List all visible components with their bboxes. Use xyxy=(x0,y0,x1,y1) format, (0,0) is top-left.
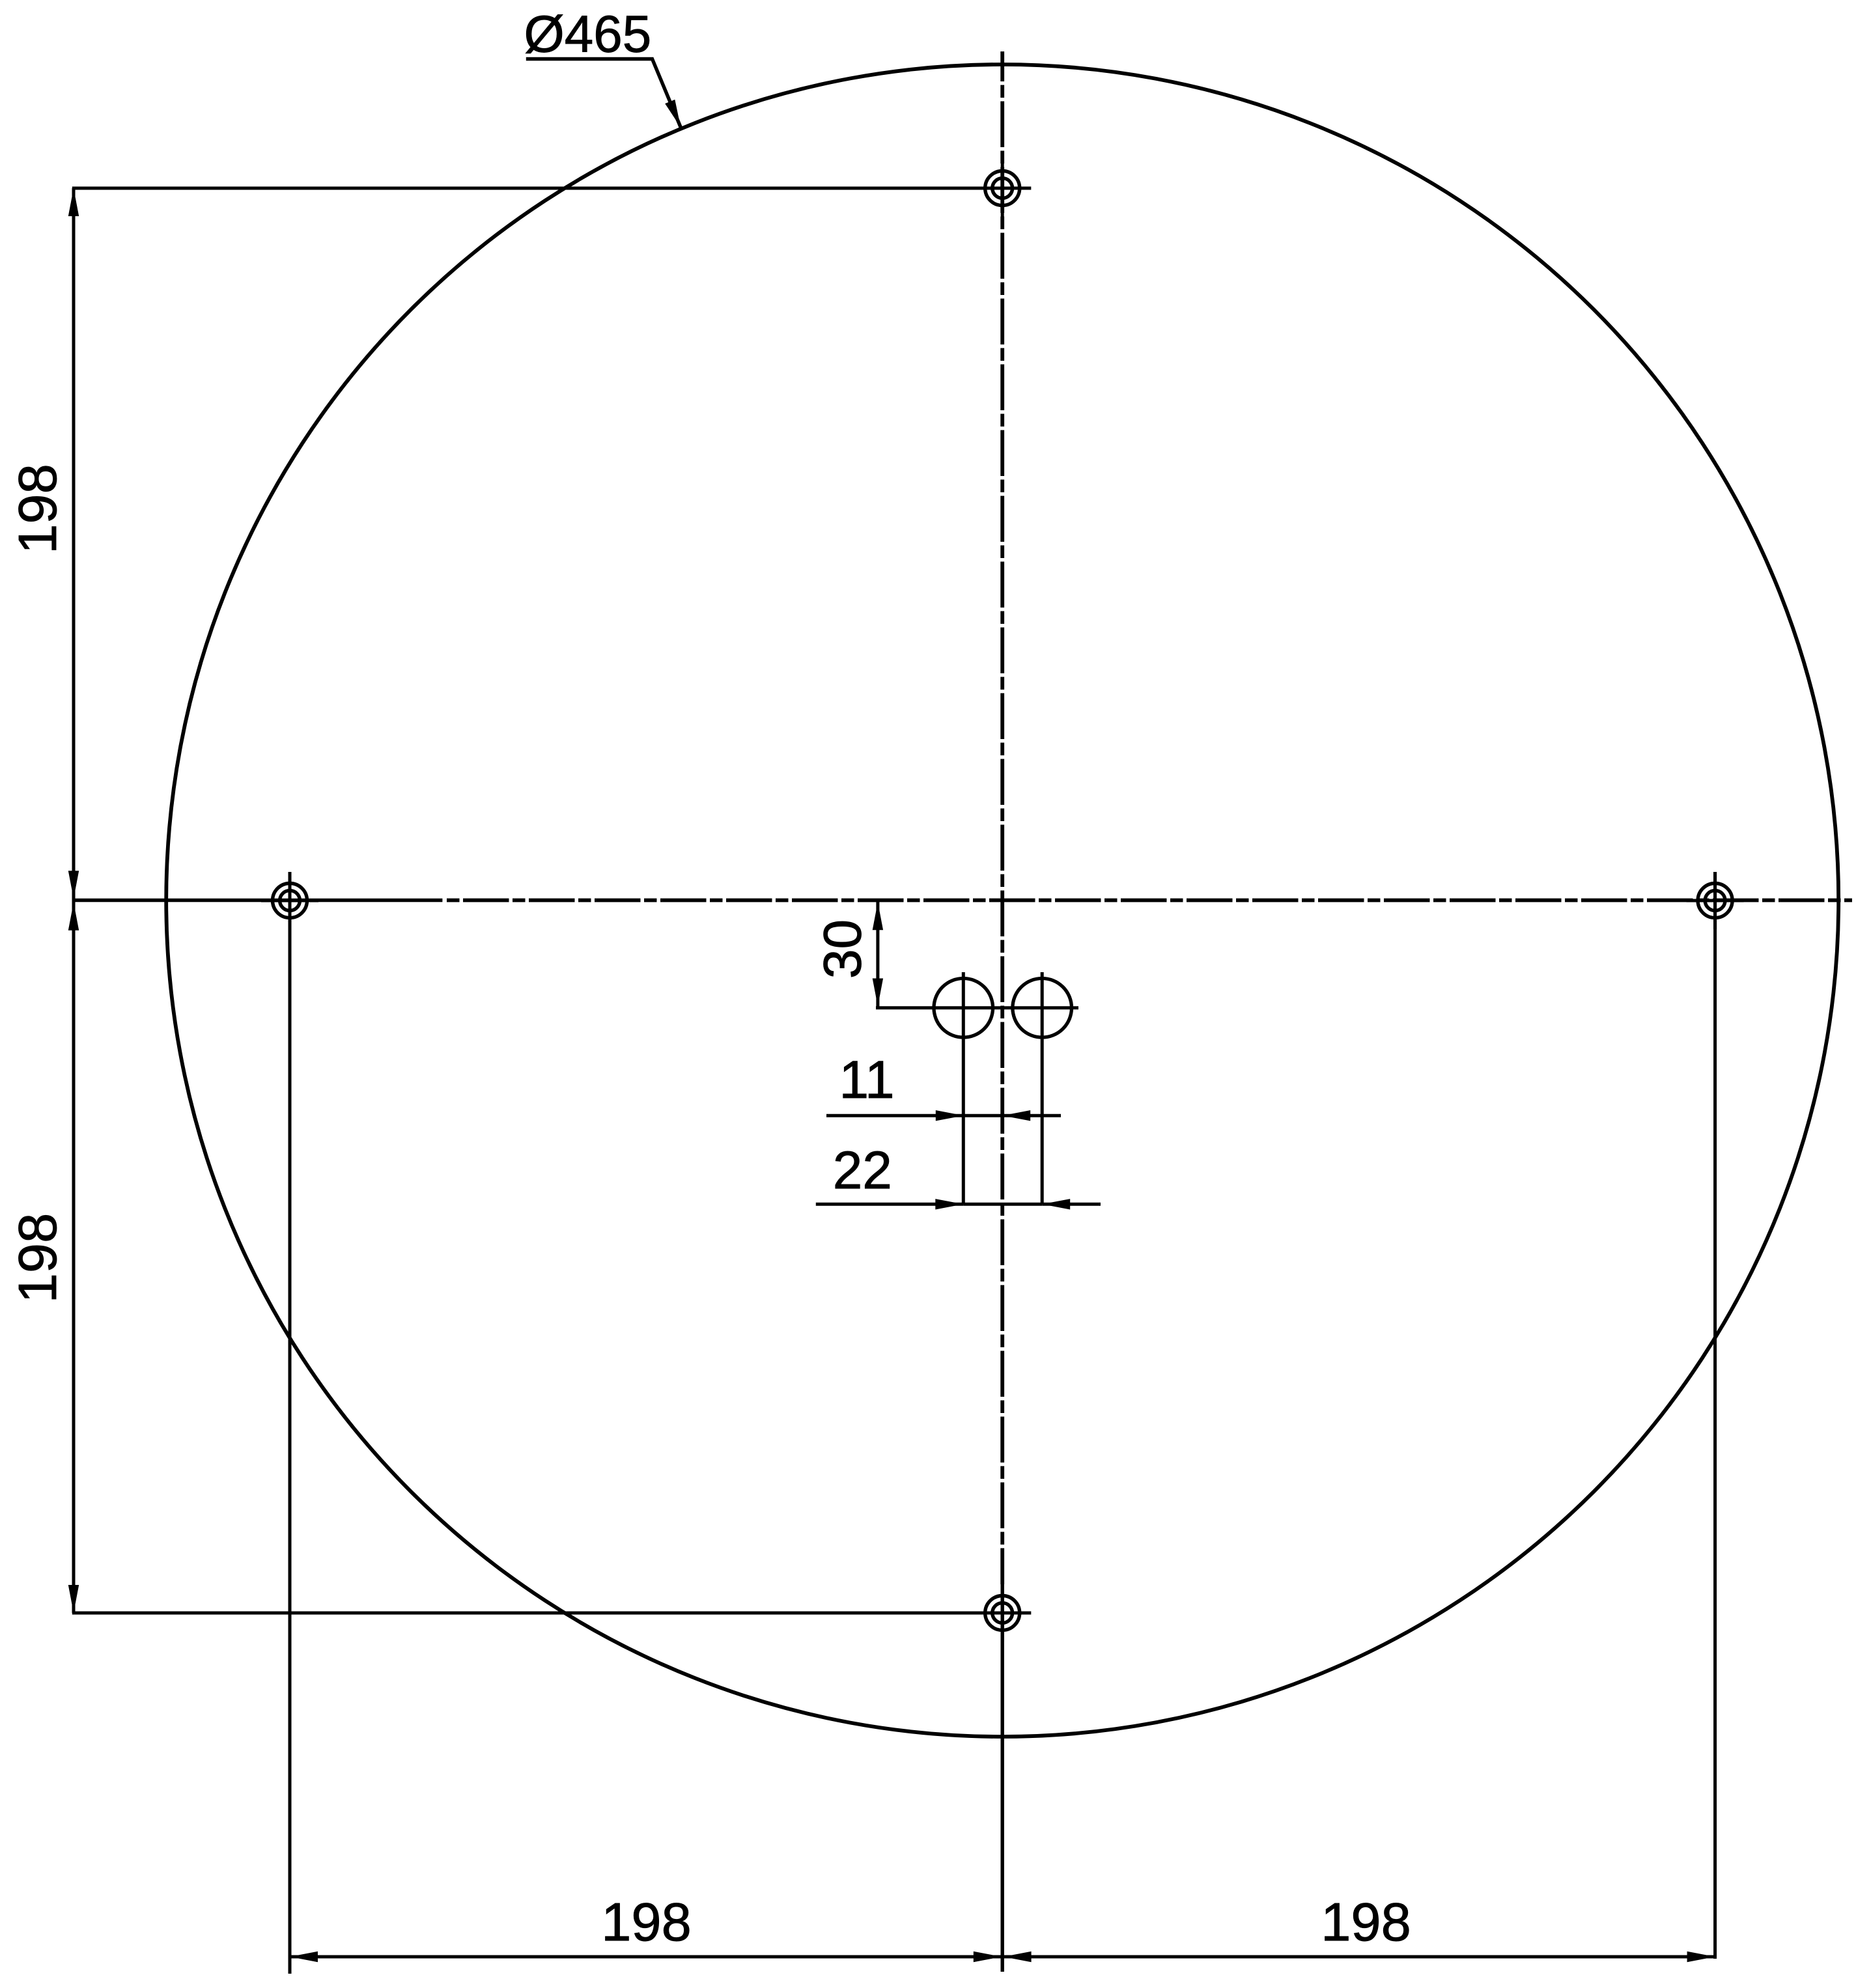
svg-text:198: 198 xyxy=(7,464,68,553)
svg-text:Ø465: Ø465 xyxy=(524,5,652,63)
svg-text:198: 198 xyxy=(601,1892,691,1952)
svg-text:198: 198 xyxy=(7,1213,68,1303)
svg-text:198: 198 xyxy=(1321,1892,1411,1952)
svg-text:11: 11 xyxy=(839,1050,894,1110)
svg-text:22: 22 xyxy=(833,1141,892,1200)
svg-text:30: 30 xyxy=(813,919,873,979)
